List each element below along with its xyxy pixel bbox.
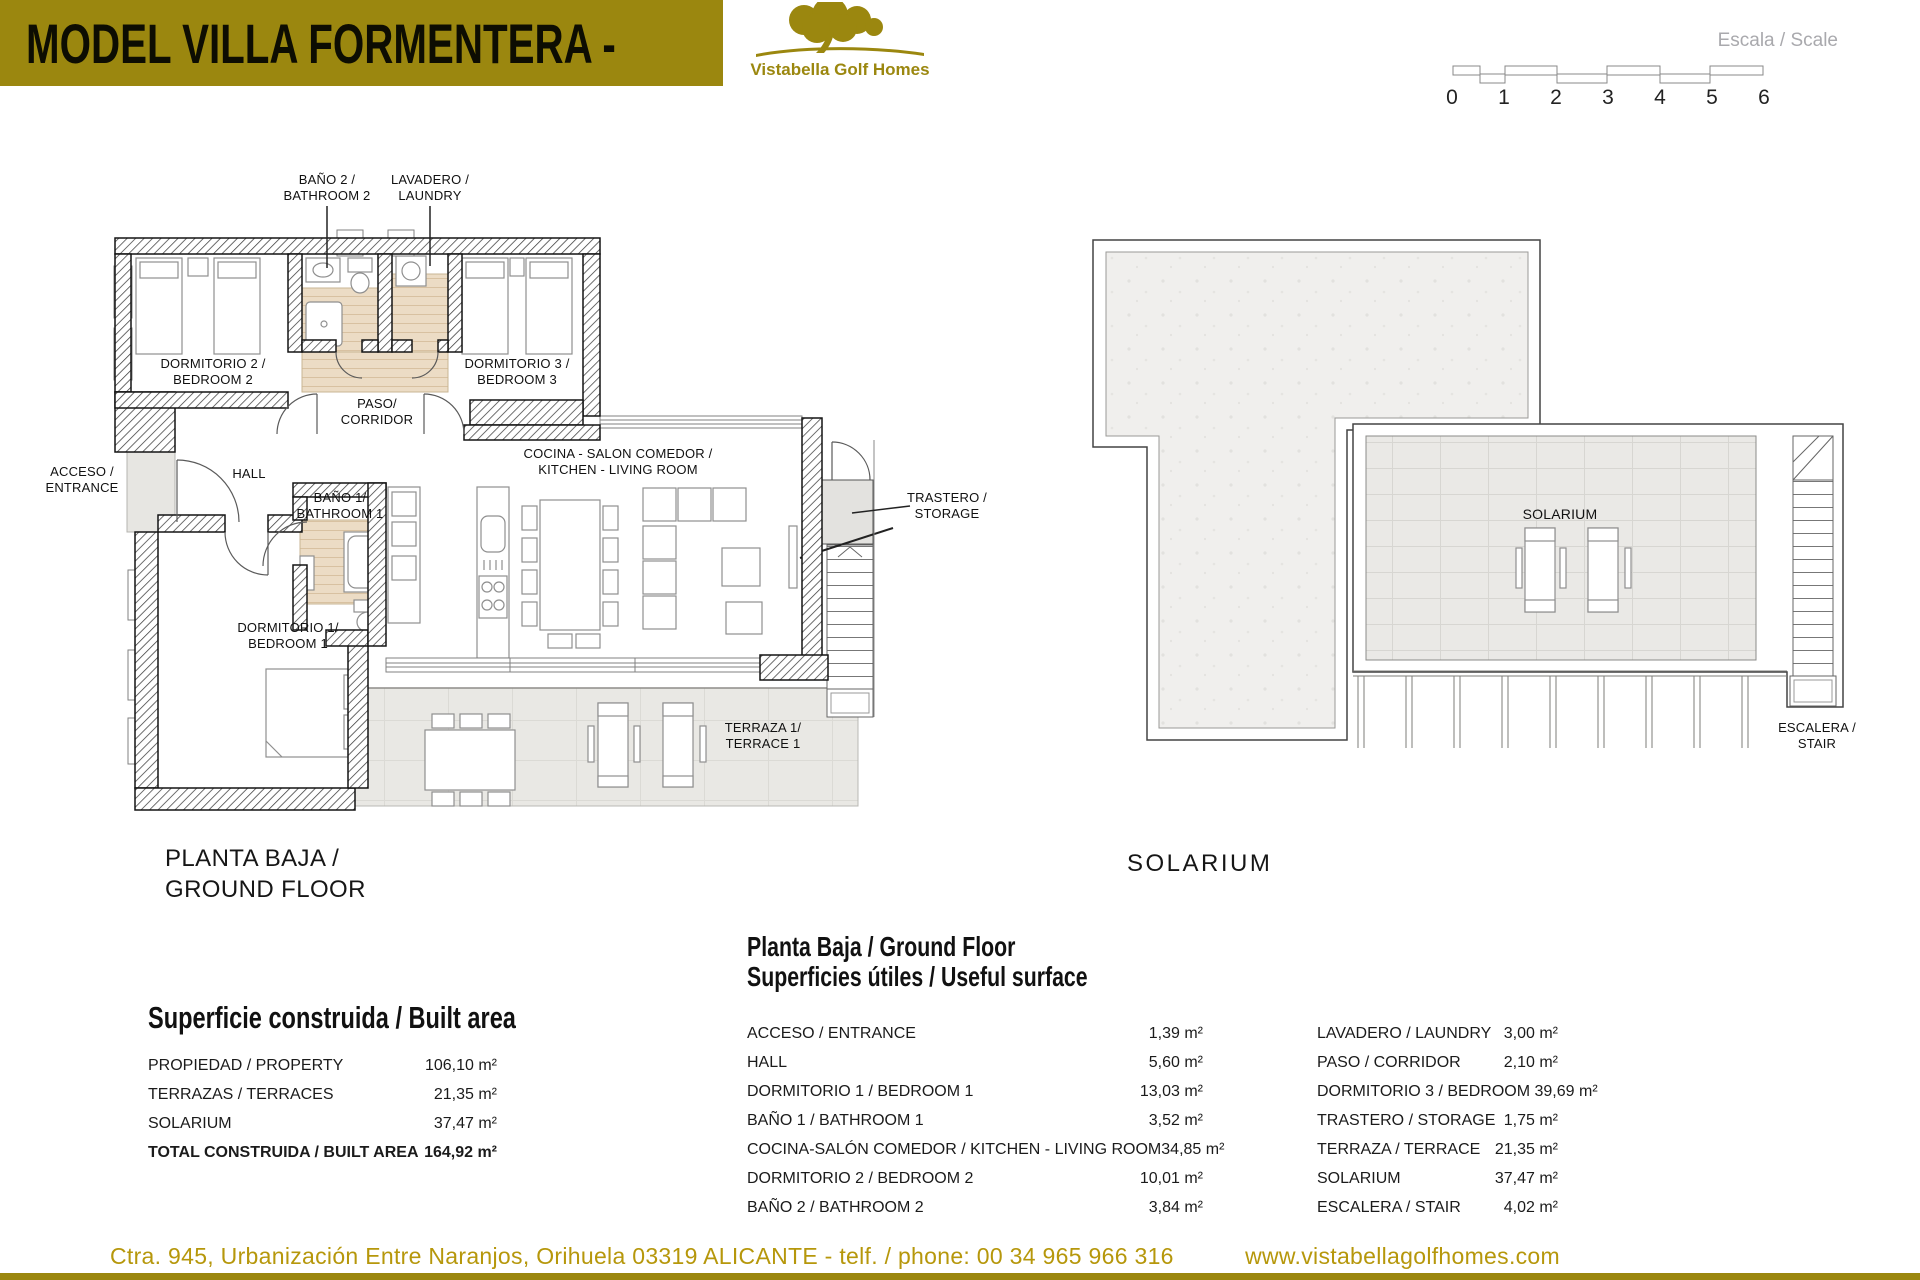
footer-address: Ctra. 945, Urbanización Entre Naranjos, …	[110, 1243, 1174, 1270]
row-label: ACCESO / ENTRANCE	[747, 1026, 916, 1042]
room-label-bedroom3: DORMITORIO 3 / BEDROOM 3	[464, 356, 569, 387]
row-label: HALL	[747, 1055, 787, 1071]
row-value: 21,35 m²	[1495, 1142, 1558, 1158]
room-label-bathroom2: BAÑO 2 / BATHROOM 2	[284, 172, 371, 203]
table-row: ESCALERA / STAIR4,02 m²	[1317, 1200, 1558, 1216]
table-row: LAVADERO / LAUNDRY3,00 m²	[1317, 1026, 1558, 1042]
vistabella-tree-logo-icon	[742, 2, 938, 60]
row-label: DORMITORIO 2 / BEDROOM 2	[747, 1171, 973, 1187]
row-label: DORMITORIO 3 / BEDROOM 3	[1317, 1084, 1543, 1100]
useful-surface-title-line1: Planta Baja / Ground Floor	[747, 932, 1015, 962]
row-value: 2,10 m²	[1504, 1055, 1558, 1071]
table-row: PROPIEDAD / PROPERTY106,10 m²	[148, 1058, 497, 1074]
solarium-title: SOLARIUM	[1127, 848, 1272, 879]
model-title: MODEL VILLA FORMENTERA -	[26, 11, 616, 76]
ground-floor-title: PLANTA BAJA / GROUND FLOOR	[165, 843, 366, 905]
useful-surface-left-column: ACCESO / ENTRANCE1,39 m² HALL5,60 m² DOR…	[747, 1026, 1203, 1216]
row-value: 3,00 m²	[1504, 1026, 1558, 1042]
table-row: SOLARIUM37,47 m²	[148, 1116, 497, 1132]
footer-gold-bar	[0, 1273, 1920, 1280]
row-label: BAÑO 1 / BATHROOM 1	[747, 1113, 924, 1129]
row-label: TRASTERO / STORAGE	[1317, 1113, 1495, 1129]
row-label: SOLARIUM	[1317, 1171, 1401, 1187]
row-value: 9,69 m²	[1543, 1084, 1597, 1100]
row-value: 21,35 m²	[434, 1087, 497, 1103]
table-row: TRASTERO / STORAGE1,75 m²	[1317, 1113, 1558, 1129]
room-label-bathroom1: BAÑO 1/ BATHROOM 1	[297, 490, 384, 521]
built-area-title: Superficie construida / Built area	[148, 1000, 632, 1036]
table-row-total: TOTAL CONSTRUIDA / BUILT AREA164,92 m²	[148, 1145, 497, 1161]
table-row: TERRAZAS / TERRACES21,35 m²	[148, 1087, 497, 1103]
scale-tick: 0	[1442, 86, 1462, 110]
useful-surface-title: Planta Baja / Ground Floor Superficies ú…	[747, 932, 1195, 992]
row-value: 34,85 m²	[1161, 1142, 1224, 1158]
row-value: 13,03 m²	[1140, 1084, 1203, 1100]
table-row: DORMITORIO 1 / BEDROOM 113,03 m²	[747, 1084, 1203, 1100]
scale-label: Escala / Scale	[1638, 30, 1838, 52]
table-row: ACCESO / ENTRANCE1,39 m²	[747, 1026, 1203, 1042]
useful-surface-title-line2: Superficies útiles / Useful surface	[747, 962, 1088, 992]
scale-ticks: 0 1 2 3 4 5 6	[1442, 86, 1774, 110]
solarium-plan	[1093, 240, 1843, 748]
room-label-entrance: ACCESO / ENTRANCE	[45, 464, 118, 495]
table-row: PASO / CORRIDOR2,10 m²	[1317, 1055, 1558, 1071]
room-label-storage: TRASTERO / STORAGE	[907, 490, 987, 521]
table-row: TERRAZA / TERRACE21,35 m²	[1317, 1142, 1558, 1158]
room-label-bedroom2: DORMITORIO 2 / BEDROOM 2	[160, 356, 265, 387]
table-row: DORMITORIO 3 / BEDROOM 39,69 m²	[1317, 1084, 1558, 1100]
table-row: DORMITORIO 2 / BEDROOM 210,01 m²	[747, 1171, 1203, 1187]
row-value: 1,39 m²	[1149, 1026, 1203, 1042]
row-value: 1,75 m²	[1504, 1113, 1558, 1129]
row-label: BAÑO 2 / BATHROOM 2	[747, 1200, 924, 1216]
room-label-kitchen-living: COCINA - SALON COMEDOR / KITCHEN - LIVIN…	[524, 446, 713, 477]
table-row: SOLARIUM37,47 m²	[1317, 1171, 1558, 1187]
row-label: PASO / CORRIDOR	[1317, 1055, 1461, 1071]
scale-ruler	[1453, 66, 1763, 83]
row-value: 10,01 m²	[1140, 1171, 1203, 1187]
plan-sheet: MODEL VILLA FORMENTERA - 3 Bedrooms Vist…	[0, 0, 1920, 1280]
built-area-title-text: Superficie construida / Built area	[148, 1000, 516, 1036]
useful-surface-right-column: LAVADERO / LAUNDRY3,00 m² PASO / CORRIDO…	[1317, 1026, 1558, 1216]
header-banner: MODEL VILLA FORMENTERA - 3 Bedrooms	[0, 0, 723, 86]
row-label: SOLARIUM	[148, 1116, 232, 1132]
scale-tick: 5	[1702, 86, 1722, 110]
scale-tick: 3	[1598, 86, 1618, 110]
scale-tick: 1	[1494, 86, 1514, 110]
row-label: TERRAZAS / TERRACES	[148, 1087, 334, 1103]
row-label: PROPIEDAD / PROPERTY	[148, 1058, 343, 1074]
built-area-table: PROPIEDAD / PROPERTY106,10 m² TERRAZAS /…	[148, 1058, 497, 1161]
scale-tick: 6	[1754, 86, 1774, 110]
table-row: BAÑO 2 / BATHROOM 23,84 m²	[747, 1200, 1203, 1216]
row-label: DORMITORIO 1 / BEDROOM 1	[747, 1084, 973, 1100]
footer: Ctra. 945, Urbanización Entre Naranjos, …	[110, 1243, 1560, 1270]
scale-tick: 2	[1546, 86, 1566, 110]
row-value: 5,60 m²	[1149, 1055, 1203, 1071]
brand-name: Vistabella Golf Homes	[742, 60, 938, 80]
room-label-bedroom1: DORMITORIO 1/ BEDROOM 1	[237, 620, 338, 651]
row-value: 3,84 m²	[1149, 1200, 1203, 1216]
row-label: TERRAZA / TERRACE	[1317, 1142, 1480, 1158]
footer-website[interactable]: www.vistabellagolfhomes.com	[1245, 1243, 1560, 1270]
table-row: BAÑO 1 / BATHROOM 13,52 m²	[747, 1113, 1203, 1129]
row-value: 164,92 m²	[424, 1145, 497, 1161]
row-label: COCINA-SALÓN COMEDOR / KITCHEN - LIVING …	[747, 1142, 1161, 1158]
room-label-stair: ESCALERA / STAIR	[1778, 720, 1856, 751]
room-label-laundry: LAVADERO / LAUNDRY	[391, 172, 469, 203]
row-value: 106,10 m²	[425, 1058, 497, 1074]
room-label-terrace1: TERRAZA 1/ TERRACE 1	[725, 720, 801, 751]
row-value: 3,52 m²	[1149, 1113, 1203, 1129]
row-value: 37,47 m²	[434, 1116, 497, 1132]
row-label: TOTAL CONSTRUIDA / BUILT AREA	[148, 1145, 419, 1161]
row-label: ESCALERA / STAIR	[1317, 1200, 1461, 1216]
room-label-solarium: SOLARIUM	[1523, 507, 1598, 523]
table-row: COCINA-SALÓN COMEDOR / KITCHEN - LIVING …	[747, 1142, 1203, 1158]
row-value: 4,02 m²	[1504, 1200, 1558, 1216]
table-row: HALL5,60 m²	[747, 1055, 1203, 1071]
room-label-corridor: PASO/ CORRIDOR	[341, 396, 413, 427]
row-value: 37,47 m²	[1495, 1171, 1558, 1187]
scale-tick: 4	[1650, 86, 1670, 110]
row-label: LAVADERO / LAUNDRY	[1317, 1026, 1491, 1042]
room-label-hall: HALL	[232, 466, 265, 482]
